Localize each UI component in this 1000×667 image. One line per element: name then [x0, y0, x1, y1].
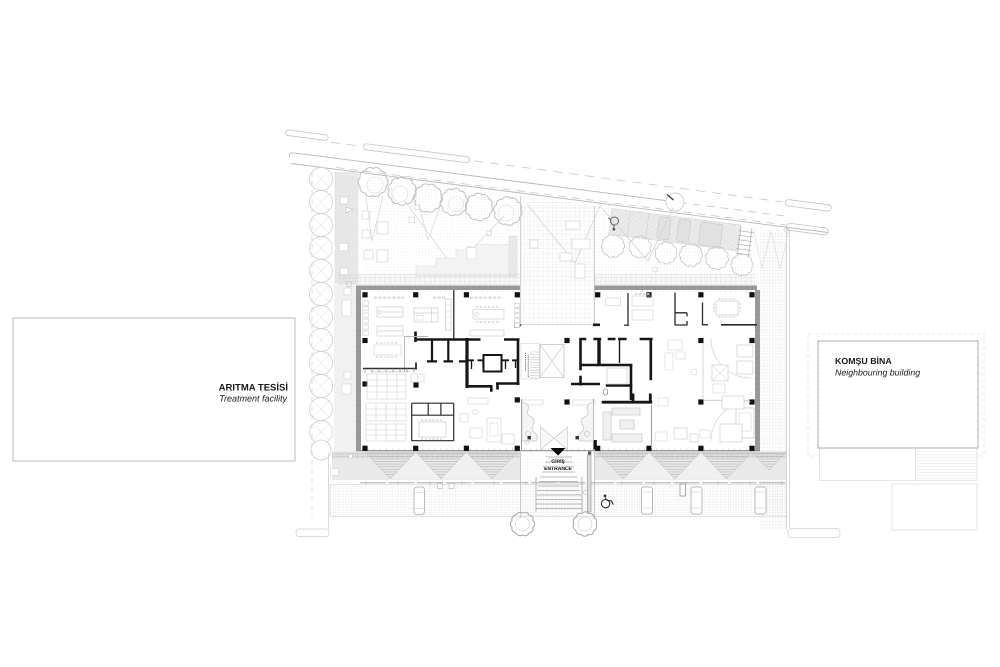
svg-text:Neighbouring building: Neighbouring building	[835, 368, 920, 378]
svg-text:Treatment facility: Treatment facility	[219, 394, 287, 404]
svg-text:KOMŞU BİNA: KOMŞU BİNA	[835, 356, 892, 366]
svg-text:GİRİŞ: GİRİŞ	[551, 458, 565, 465]
svg-text:ARITMA TESİSİ: ARITMA TESİSİ	[219, 382, 288, 394]
